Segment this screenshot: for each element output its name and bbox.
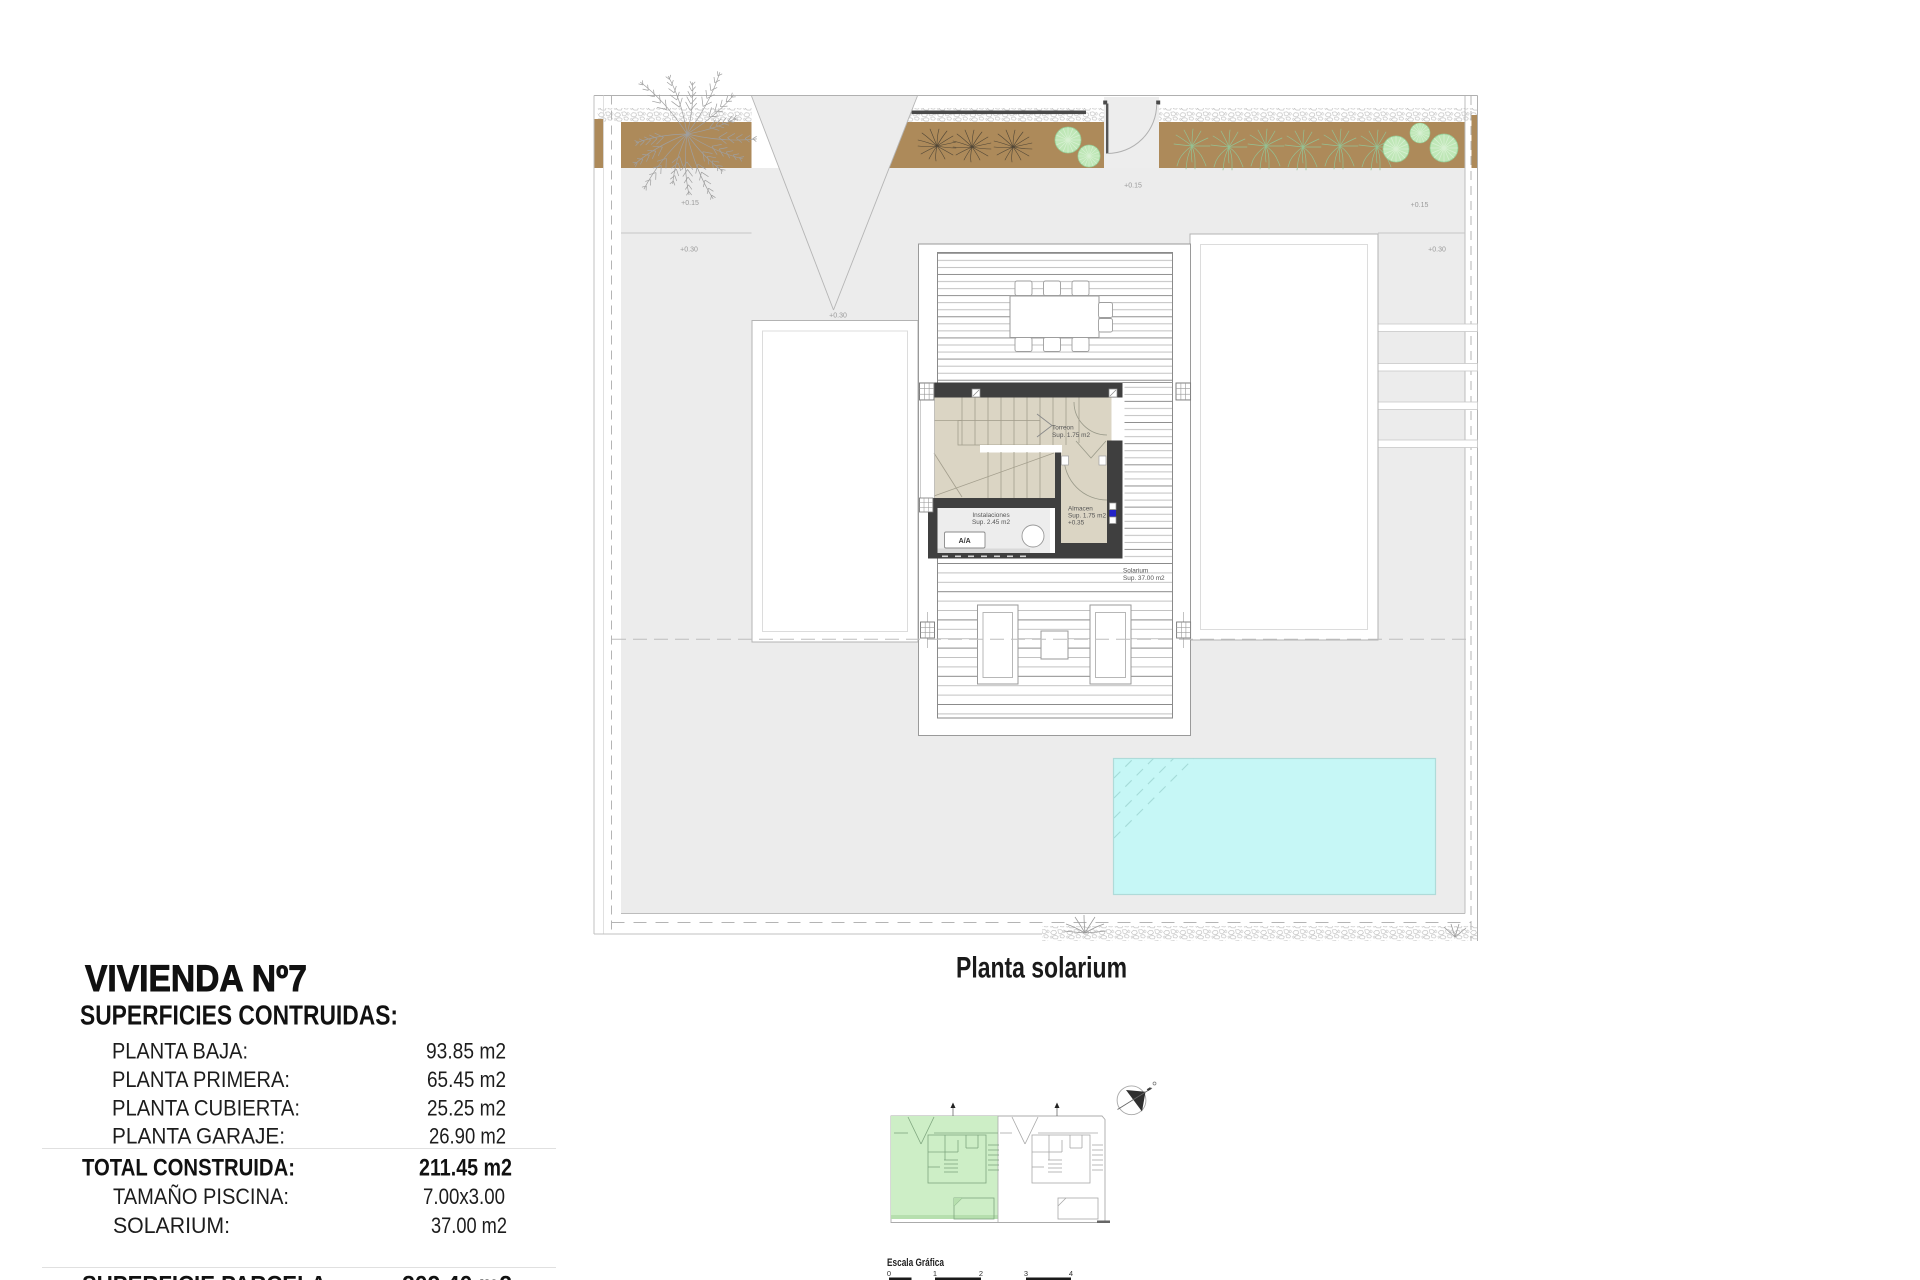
svg-text:0: 0 — [887, 1269, 891, 1278]
svg-text:211.45 m2: 211.45 m2 — [419, 1155, 512, 1182]
svg-text:SUPERFICIES CONTRUIDAS:: SUPERFICIES CONTRUIDAS: — [80, 1000, 398, 1031]
svg-text:4: 4 — [1069, 1269, 1073, 1278]
svg-text:+0.15: +0.15 — [1124, 183, 1142, 190]
svg-text:93.85 m2: 93.85 m2 — [426, 1039, 506, 1064]
svg-text:+0.30: +0.30 — [829, 313, 847, 320]
svg-text:2: 2 — [979, 1269, 983, 1278]
svg-text:+0.30: +0.30 — [1428, 247, 1446, 254]
svg-text:A/A: A/A — [959, 538, 971, 545]
svg-text:PLANTA BAJA:: PLANTA BAJA: — [112, 1039, 248, 1064]
svg-text:Almacen: Almacen — [1068, 506, 1093, 513]
svg-text:+0.35: +0.35 — [1068, 520, 1085, 527]
svg-text:VIVIENDA Nº7: VIVIENDA Nº7 — [85, 958, 307, 999]
svg-text:209.40 m2: 209.40 m2 — [402, 1272, 512, 1280]
svg-text:TAMAÑO PISCINA:: TAMAÑO PISCINA: — [113, 1184, 289, 1209]
svg-text:26.90 m2: 26.90 m2 — [429, 1124, 506, 1149]
svg-text:TOTAL CONSTRUIDA:: TOTAL CONSTRUIDA: — [82, 1155, 295, 1182]
svg-text:+0.15: +0.15 — [681, 200, 699, 207]
svg-text:SUPERFICIE PARCELA:: SUPERFICIE PARCELA: — [82, 1272, 334, 1280]
svg-text:Planta solarium: Planta solarium — [956, 952, 1127, 985]
svg-text:3: 3 — [1024, 1269, 1028, 1278]
svg-text:Instalaciones: Instalaciones — [972, 512, 1009, 519]
svg-text:Escala Gráfica: Escala Gráfica — [887, 1257, 945, 1269]
svg-text:Sup. 37.00 m2: Sup. 37.00 m2 — [1123, 575, 1165, 582]
svg-text:+0.30: +0.30 — [680, 247, 698, 254]
svg-text:65.45 m2: 65.45 m2 — [427, 1067, 506, 1092]
svg-text:7.00x3.00: 7.00x3.00 — [423, 1184, 505, 1209]
svg-text:Sup. 1.75 m2: Sup. 1.75 m2 — [1068, 513, 1106, 520]
svg-text:25.25 m2: 25.25 m2 — [427, 1096, 506, 1121]
svg-text:Sup. 2.45 m2: Sup. 2.45 m2 — [972, 519, 1010, 526]
svg-text:Sup. 1.75 m2: Sup. 1.75 m2 — [1052, 432, 1090, 439]
svg-text:PLANTA GARAJE:: PLANTA GARAJE: — [112, 1124, 285, 1149]
svg-text:PLANTA PRIMERA:: PLANTA PRIMERA: — [112, 1067, 290, 1092]
svg-text:Torreon: Torreon — [1052, 425, 1074, 432]
svg-text:PLANTA CUBIERTA:: PLANTA CUBIERTA: — [112, 1096, 300, 1121]
svg-text:1: 1 — [933, 1269, 937, 1278]
svg-text:SOLARIUM:: SOLARIUM: — [113, 1213, 230, 1238]
svg-text:+0.15: +0.15 — [1411, 202, 1429, 209]
svg-text:37.00 m2: 37.00 m2 — [431, 1213, 507, 1238]
svg-text:Solarium: Solarium — [1123, 568, 1148, 575]
